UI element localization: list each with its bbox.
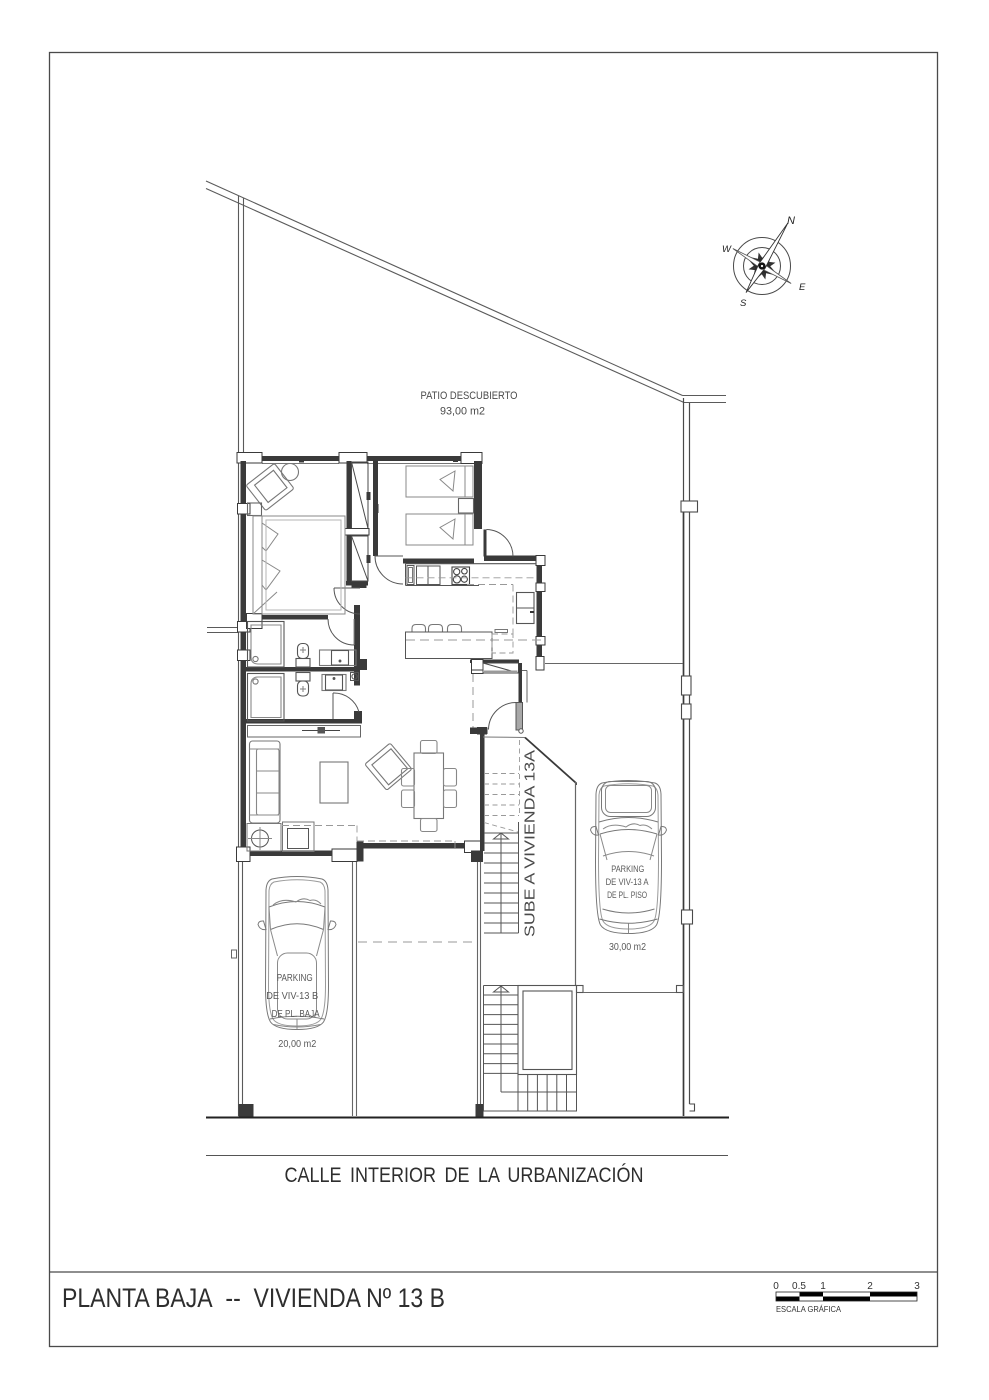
svg-text:0: 0	[773, 1281, 779, 1292]
svg-text:DE VIV-13 A: DE VIV-13 A	[606, 877, 650, 888]
svg-text:ESCALA GRÁFICA: ESCALA GRÁFICA	[776, 1304, 841, 1314]
svg-text:DE PL. PISO: DE PL. PISO	[607, 890, 647, 901]
svg-text:DE VIV-13 B: DE VIV-13 B	[266, 990, 318, 1002]
svg-text:CALLE INTERIOR DE LA URBANIZAC: CALLE INTERIOR DE LA URBANIZACIÓN	[285, 1164, 644, 1187]
svg-text:PATIO DESCUBIERTO: PATIO DESCUBIERTO	[421, 390, 518, 402]
svg-text:1: 1	[820, 1281, 826, 1292]
svg-text:2: 2	[867, 1281, 873, 1292]
svg-text:N: N	[787, 215, 795, 227]
svg-text:DE PL. BAJA: DE PL. BAJA	[272, 1008, 320, 1020]
svg-text:S: S	[740, 298, 747, 309]
svg-text:SUBE A VIVIENDA 13A: SUBE A VIVIENDA 13A	[522, 750, 539, 937]
svg-text:20,00 m2: 20,00 m2	[278, 1038, 316, 1050]
svg-text:W: W	[722, 244, 732, 255]
svg-text:PARKING: PARKING	[277, 972, 313, 984]
svg-text:3: 3	[914, 1281, 920, 1292]
svg-text:PLANTA BAJA -- VIVIENDA Nº 1: PLANTA BAJA -- VIVIENDA Nº 13 B	[62, 1283, 445, 1313]
svg-text:E: E	[799, 282, 806, 293]
svg-text:PARKING: PARKING	[611, 864, 644, 875]
svg-text:30,00 m2: 30,00 m2	[609, 941, 646, 953]
svg-text:0.5: 0.5	[792, 1281, 806, 1292]
svg-text:93,00 m2: 93,00 m2	[440, 406, 485, 418]
